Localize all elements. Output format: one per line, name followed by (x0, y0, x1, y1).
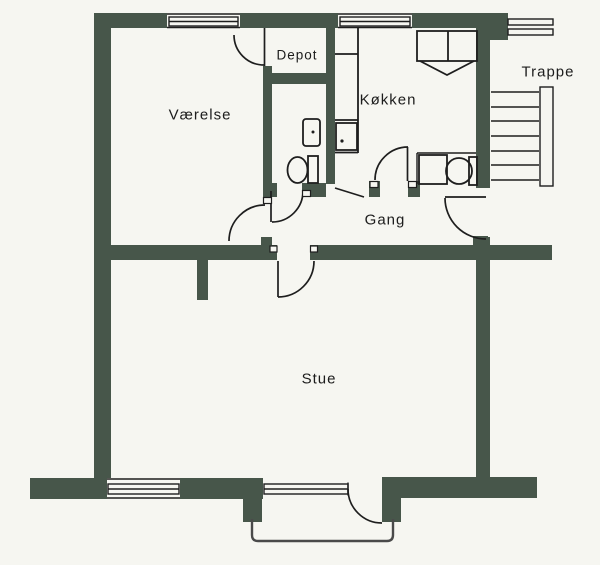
vaerelse-door (229, 205, 265, 241)
middle-wall-left (111, 245, 277, 260)
bottom-wall-left (30, 478, 107, 499)
bathroom-fixtures (288, 119, 321, 183)
entrance-door (445, 197, 486, 239)
stove-dot (340, 139, 343, 142)
kitchen-window (338, 14, 412, 28)
stairwell-window (508, 19, 553, 35)
room-label-trappe: Trappe (522, 64, 575, 81)
wc-fixtures (417, 153, 477, 185)
staircase (491, 87, 553, 186)
kitchen-door (375, 147, 408, 181)
top-wall-segment (240, 13, 338, 28)
room-label-depot: Depot (276, 48, 317, 63)
wc-shower-square (419, 155, 447, 184)
depot-door (234, 28, 265, 66)
kitchen-fixtures (335, 28, 477, 153)
balcony-pier-left (243, 478, 262, 522)
floor-plan-drawing (0, 0, 600, 565)
stair-banister (540, 87, 553, 186)
bathroom-door-jamb-left (263, 183, 277, 197)
right-wall-lower (476, 237, 490, 477)
left-wall (94, 13, 111, 478)
kitchen-counter (335, 28, 358, 153)
room-label-koekken: Køkken (360, 92, 417, 109)
stue-door (278, 261, 314, 297)
vaerelse-door-jamb (261, 237, 272, 246)
stue-window (107, 479, 180, 498)
right-wall-upper (476, 28, 490, 188)
middle-wall-right (310, 245, 552, 260)
balcony-window (264, 483, 348, 496)
stue-wall-pier (197, 260, 208, 300)
toilet-icon (446, 157, 477, 185)
depot-bottom-wall (263, 73, 327, 84)
sink-icon (303, 119, 320, 146)
bottom-wall-right (382, 477, 537, 498)
bathroom-kitchen-wall (326, 28, 335, 184)
room-label-vaerelse: Værelse (169, 107, 232, 124)
room-label-stue: Stue (302, 371, 337, 388)
stove-icon (336, 123, 357, 150)
balcony-pier-right (382, 477, 401, 522)
room-label-gang: Gang (365, 212, 406, 229)
toilet-icon (288, 156, 319, 183)
balcony-door (348, 489, 382, 523)
vaerelse-window (167, 14, 240, 28)
sink-drain-dot (312, 131, 315, 134)
kitchen-appliance-unit (417, 31, 477, 75)
door-leaf-ajar (335, 188, 364, 197)
floor-plan: Værelse Depot Køkken Trappe Gang Stue (0, 0, 600, 565)
exterior-walls (30, 13, 537, 522)
